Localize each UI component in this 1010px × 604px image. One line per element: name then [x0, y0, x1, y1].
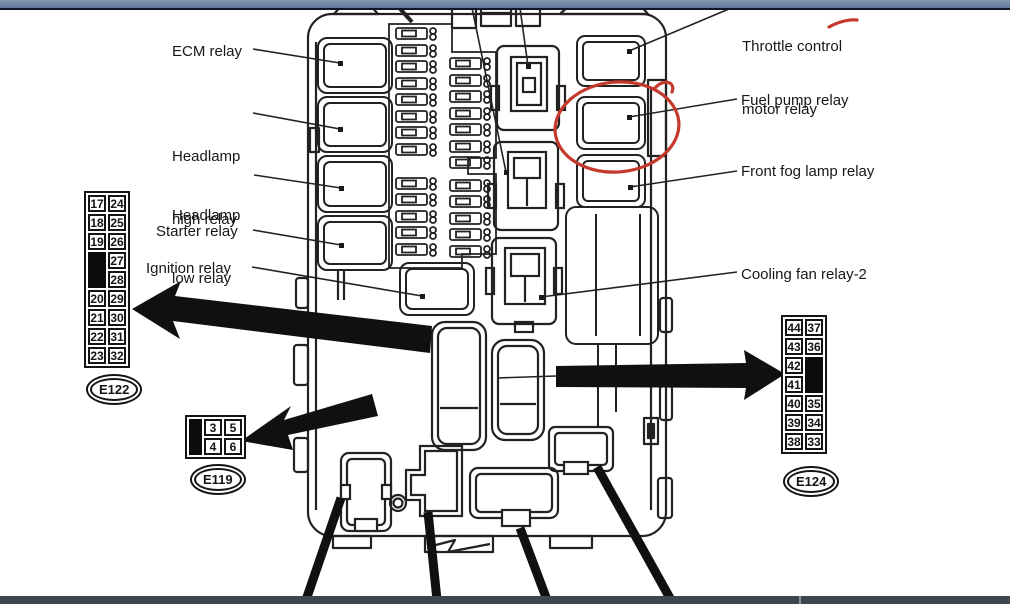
arrow-to-e124 [556, 350, 785, 400]
pin-cell: 27 [108, 252, 126, 269]
pin-cell: 25 [108, 214, 126, 231]
pin-cell: 30 [108, 309, 126, 326]
arrow-to-e119 [241, 394, 378, 450]
center-sockets [486, 46, 565, 332]
pin-cell: 38 [785, 433, 803, 450]
pin-cell: 41 [785, 376, 803, 393]
pin-cell: 39 [785, 414, 803, 431]
pin-cell: 34 [805, 414, 823, 431]
headlamp-high-relay-box [318, 97, 392, 152]
blocked-pin-cell [805, 357, 823, 393]
connector-badge-e122: E122 [86, 374, 142, 405]
pin-cell: 23 [88, 347, 106, 364]
label-ignition-relay: Ignition relay [146, 258, 231, 279]
pin-cell: 21 [88, 309, 106, 326]
headlamp-low-relay-box [318, 156, 392, 212]
bottom-leader-lines [306, 467, 671, 600]
pin-cell: 18 [88, 214, 106, 231]
pin-cell: 43 [785, 338, 803, 355]
red-circle-fuel-pump-relay [551, 77, 682, 177]
pin-cell: 24 [108, 195, 126, 212]
tall-connectors [432, 322, 544, 450]
cooling-fan-relay-socket [486, 238, 562, 332]
pin-cell: 36 [805, 338, 823, 355]
pin-cell: 6 [224, 438, 242, 455]
pin-cell: 19 [88, 233, 106, 250]
taskbar-divider [799, 596, 801, 604]
fuse-box-diagram-page: Throttle control motor relay ECM relay H… [0, 0, 1010, 604]
center-socket-top [491, 46, 565, 130]
pin-cell: 29 [108, 290, 126, 307]
pin-cell: 4 [204, 438, 222, 455]
ignition-relay-box [400, 263, 474, 315]
front-fog-lamp-relay-box [577, 155, 645, 207]
bottom-taskbar [0, 596, 1010, 604]
connector-badge-e124: E124 [783, 466, 839, 497]
label-headlamp-low-relay: Headlamp low relay [172, 163, 240, 331]
red-dash-motor-relay [829, 20, 857, 27]
pin-cell: 5 [224, 419, 242, 436]
fuse-box-line-art [0, 0, 1010, 604]
fuse-bank [389, 24, 496, 268]
pin-cell: 37 [805, 319, 823, 336]
pin-cell: 35 [805, 395, 823, 412]
throttle-control-motor-relay-box [577, 36, 645, 86]
label-front-fog-lamp-relay: Front fog lamp relay [741, 161, 874, 182]
fuel-pump-relay-box [577, 97, 645, 149]
pin-cell: 32 [108, 347, 126, 364]
pin-cell: 44 [785, 319, 803, 336]
blocked-pin-cell [189, 419, 202, 455]
pin-cell: 28 [108, 271, 126, 288]
pin-cell: 33 [805, 433, 823, 450]
blocked-pin-cell [88, 252, 106, 288]
label-starter-relay: Starter relay [156, 221, 238, 242]
label-ecm-relay: ECM relay [172, 41, 242, 62]
pin-cell: 26 [108, 233, 126, 250]
connector-grid-e119: 3 5 4 6 [185, 415, 246, 459]
label-cooling-fan-relay-2: Cooling fan relay-2 [741, 264, 867, 285]
label-fuel-pump-relay: Fuel pump relay [741, 90, 849, 111]
pin-cell: 42 [785, 357, 803, 374]
connector-badge-e119: E119 [190, 464, 246, 495]
pin-cell: 40 [785, 395, 803, 412]
pin-cell: 17 [88, 195, 106, 212]
pin-cell: 20 [88, 290, 106, 307]
pin-cell: 3 [204, 419, 222, 436]
top-window-bar [0, 0, 1010, 10]
connector-grid-e124: 44 43 42 41 40 39 38 37 36 35 34 33 [781, 315, 827, 454]
center-socket-middle [488, 142, 564, 230]
pin-cell: 31 [108, 328, 126, 345]
pin-cell: 22 [88, 328, 106, 345]
connector-grid-e122: 17 18 19 20 21 22 23 24 25 26 27 28 29 3… [84, 191, 130, 368]
ecm-relay-box [318, 38, 392, 93]
